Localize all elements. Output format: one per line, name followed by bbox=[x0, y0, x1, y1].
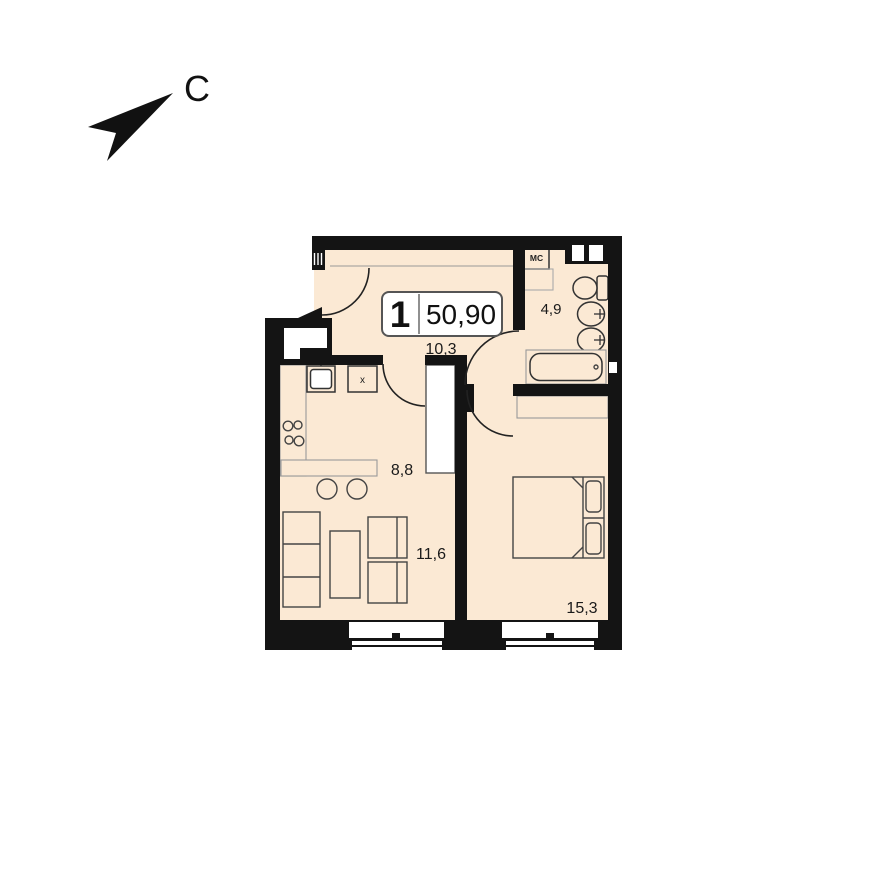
kitchen-area-label: 8,8 bbox=[391, 462, 413, 479]
wall-left bbox=[265, 318, 280, 650]
wall-bathroom-left bbox=[513, 250, 525, 330]
washing-machine-label: МС bbox=[530, 253, 543, 263]
north-arrow-icon bbox=[88, 93, 173, 161]
compass: С bbox=[88, 68, 210, 161]
bar-stool bbox=[317, 479, 337, 499]
armchair bbox=[368, 562, 407, 603]
washing-machine: МС bbox=[524, 247, 549, 269]
entry-wall-jamb bbox=[312, 236, 325, 270]
apartment-total-area: 50,90 bbox=[426, 299, 496, 330]
wall-vent-niche bbox=[565, 237, 608, 264]
hallway-area-label: 10,3 bbox=[425, 341, 456, 358]
kitchen-counter-left bbox=[280, 365, 306, 476]
hall-closet bbox=[426, 365, 455, 473]
bathtub bbox=[526, 350, 606, 384]
wall-faucet-niche bbox=[609, 362, 617, 373]
bed bbox=[513, 477, 604, 558]
kitchen-cabinet-x: х bbox=[348, 366, 377, 392]
bathroom-area-label: 4,9 bbox=[541, 301, 562, 318]
apartment-info-box: 1 50,90 bbox=[382, 292, 502, 336]
kitchen-counter-bar bbox=[281, 460, 377, 476]
armchair bbox=[368, 517, 407, 558]
pillow bbox=[586, 523, 601, 554]
sofa bbox=[283, 512, 320, 607]
bathroom-sink bbox=[578, 302, 606, 326]
wardrobe bbox=[517, 396, 608, 418]
coffee-table bbox=[330, 531, 360, 598]
floor-plan: С х bbox=[0, 0, 886, 887]
pillow bbox=[586, 481, 601, 512]
bathroom-sink bbox=[578, 328, 606, 352]
wall-right bbox=[608, 236, 622, 650]
bedroom-area-label: 15,3 bbox=[566, 600, 597, 617]
living-area-label: 11,6 bbox=[416, 546, 446, 563]
cabinet-x-label: х bbox=[360, 375, 365, 386]
wall-bathroom-bottom bbox=[513, 384, 608, 396]
wall-hall-kitchen bbox=[332, 355, 383, 365]
toilet bbox=[573, 276, 608, 300]
bar-stool bbox=[347, 479, 367, 499]
compass-north-label: С bbox=[184, 68, 210, 109]
vent-shaft bbox=[265, 307, 332, 365]
apartment-number: 1 bbox=[390, 294, 411, 335]
